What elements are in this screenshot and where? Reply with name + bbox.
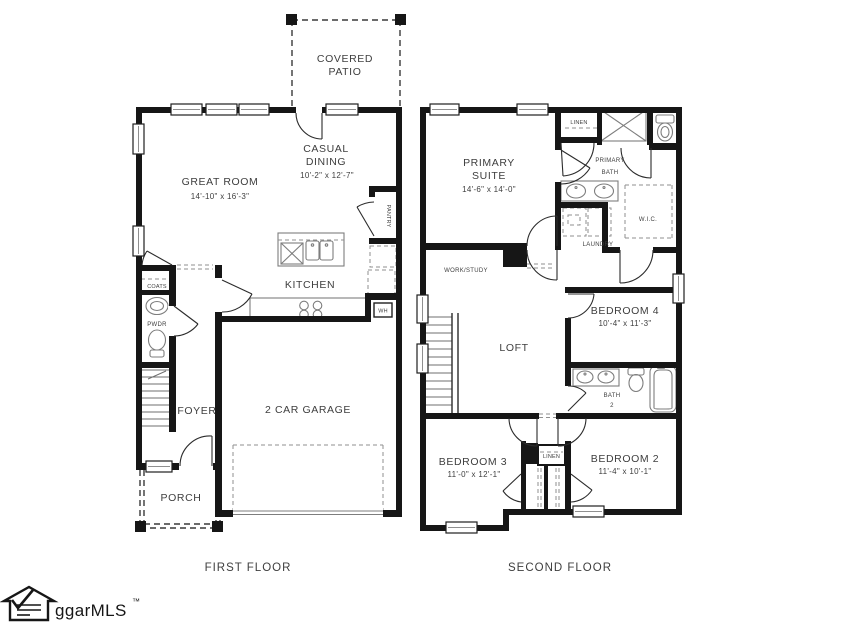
ggar-mls-logo-tm: ™ bbox=[132, 597, 141, 606]
second-floor-labels: PRIMARY SUITE 14'-6" x 14'-0" LINEN PRIM… bbox=[439, 120, 659, 574]
bath2-label-2: 2 bbox=[610, 403, 614, 409]
covered-patio-label: COVERED bbox=[317, 53, 373, 65]
garage-door bbox=[233, 508, 383, 518]
bedroom4-label: BEDROOM 4 bbox=[591, 305, 659, 317]
floor-plan-svg: COVERED PATIO GREAT ROOM 14'-10" x 16'-3… bbox=[0, 0, 851, 624]
pwdr-label: PWDR bbox=[147, 322, 167, 328]
garage-label: 2 CAR GARAGE bbox=[265, 404, 351, 416]
wh-label: WH bbox=[378, 309, 388, 315]
wic-label: W.I.C. bbox=[639, 217, 657, 223]
coats-label: COATS bbox=[147, 284, 167, 290]
laundry-label: LAUNDRY bbox=[583, 242, 614, 248]
kitchen-label: KITCHEN bbox=[285, 279, 335, 291]
wic-shelving bbox=[625, 185, 672, 238]
foyer-label: FOYER bbox=[177, 405, 216, 417]
floor-plan-image: COVERED PATIO GREAT ROOM 14'-10" x 16'-3… bbox=[0, 0, 851, 624]
casual-dining-dim: 10'-2" x 12'-7" bbox=[300, 171, 354, 180]
linen-top-label: LINEN bbox=[570, 120, 587, 126]
ggar-mls-logo: ggarMLS ™ bbox=[4, 587, 141, 620]
first-floor-stairs bbox=[138, 370, 171, 426]
second-floor-stairs bbox=[426, 313, 458, 413]
bedroom3-label: BEDROOM 3 bbox=[439, 456, 507, 468]
ggar-mls-logo-icon bbox=[4, 587, 54, 620]
primary-bath-label-2: BATH bbox=[602, 170, 619, 176]
first-floor-plan: COVERED PATIO GREAT ROOM 14'-10" x 16'-3… bbox=[133, 14, 406, 574]
second-floor-plan: PRIMARY SUITE 14'-6" x 14'-0" LINEN PRIM… bbox=[417, 104, 684, 574]
ggar-mls-logo-text: ggarMLS bbox=[55, 601, 127, 620]
great-room-dim: 14'-10" x 16'-3" bbox=[191, 192, 249, 201]
bedroom3-dim: 11'-0" x 12'-1" bbox=[447, 470, 500, 479]
casual-dining-label-2: DINING bbox=[306, 156, 346, 168]
loft-label: LOFT bbox=[499, 342, 528, 354]
primary-suite-label: PRIMARY bbox=[463, 157, 515, 169]
work-study-label: WORK/STUDY bbox=[444, 268, 488, 274]
bedroom4-dim: 10'-4" x 11'-3" bbox=[598, 319, 651, 328]
primary-suite-label-2: SUITE bbox=[472, 170, 506, 182]
bath2-fixtures bbox=[573, 363, 676, 412]
linen-mid-label: LINEN bbox=[543, 454, 560, 460]
great-room-label: GREAT ROOM bbox=[182, 176, 259, 188]
bath2-label: BATH bbox=[604, 393, 621, 399]
bedroom2-label: BEDROOM 2 bbox=[591, 453, 659, 465]
garage-door-dashed bbox=[233, 445, 383, 510]
primary-bath-label: PRIMARY bbox=[595, 158, 624, 164]
casual-dining-label: CASUAL bbox=[303, 143, 349, 155]
pantry-label: PANTRY bbox=[385, 204, 391, 227]
second-floor-caption: SECOND FLOOR bbox=[508, 562, 612, 574]
covered-patio-label-2: PATIO bbox=[329, 66, 362, 78]
primary-suite-dim: 14'-6" x 14'-0" bbox=[462, 185, 516, 194]
porch-label: PORCH bbox=[161, 492, 202, 504]
bedroom2-dim: 11'-4" x 10'-1" bbox=[598, 467, 651, 476]
first-floor-caption: FIRST FLOOR bbox=[205, 562, 292, 574]
bedroom-closets bbox=[538, 452, 563, 509]
